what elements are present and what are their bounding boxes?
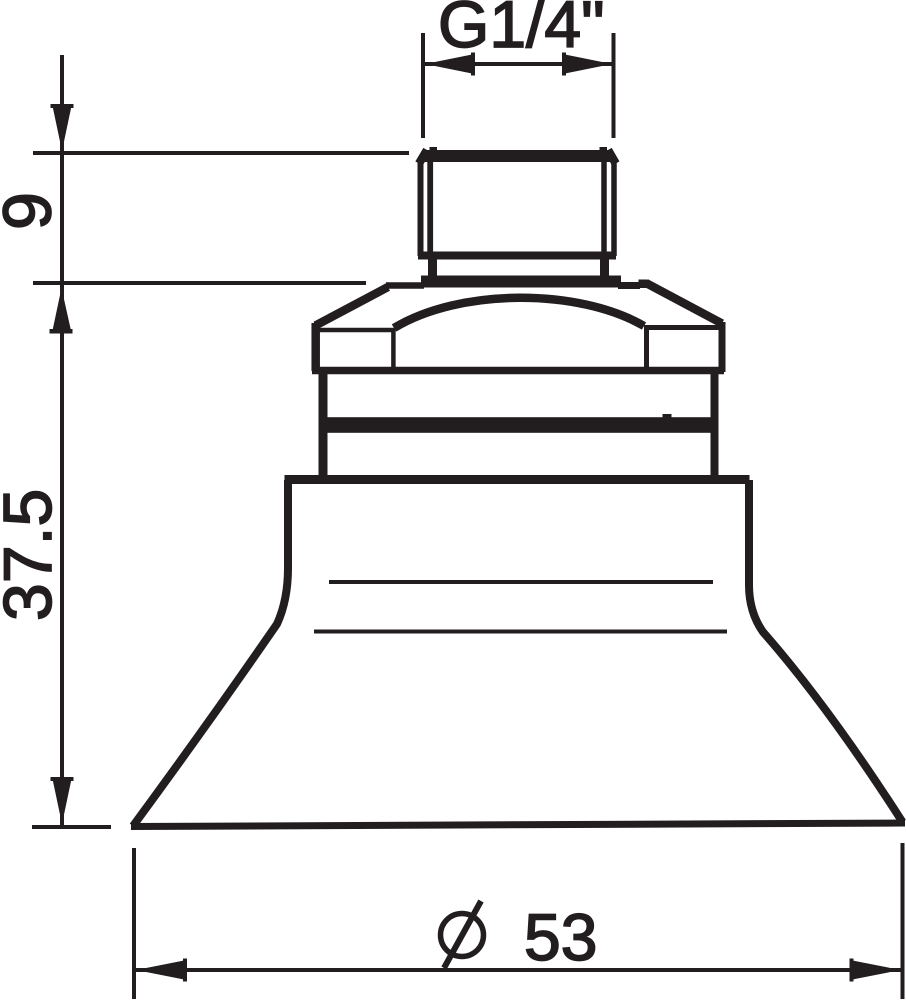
- svg-text:9: 9: [0, 192, 66, 230]
- svg-text:37.5: 37.5: [0, 489, 66, 621]
- svg-text:53: 53: [524, 900, 597, 974]
- svg-text:G1/4": G1/4": [438, 0, 605, 61]
